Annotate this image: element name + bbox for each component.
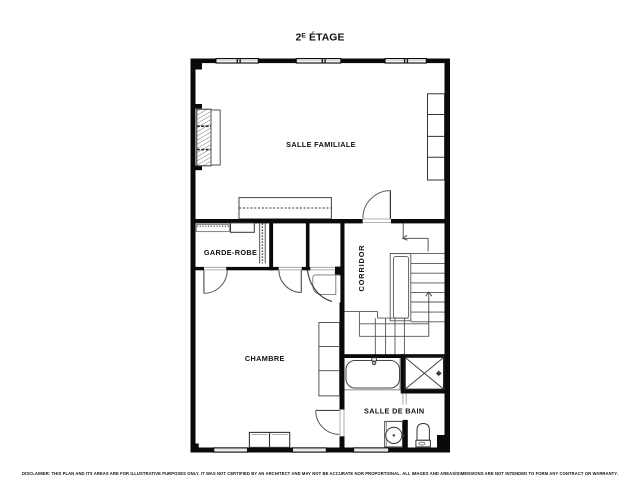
svg-text:SALLE DE BAIN: SALLE DE BAIN — [364, 407, 425, 416]
svg-text:CHAMBRE: CHAMBRE — [245, 354, 285, 363]
svg-text:DISCLAIMER: THIS PLAN AND ITS: DISCLAIMER: THIS PLAN AND ITS AREAS ARE … — [22, 471, 618, 476]
svg-text:GARDE-ROBE: GARDE-ROBE — [204, 248, 257, 257]
svg-text:CORRIDOR: CORRIDOR — [357, 245, 366, 292]
svg-text:SALLE FAMILIALE: SALLE FAMILIALE — [286, 140, 356, 149]
